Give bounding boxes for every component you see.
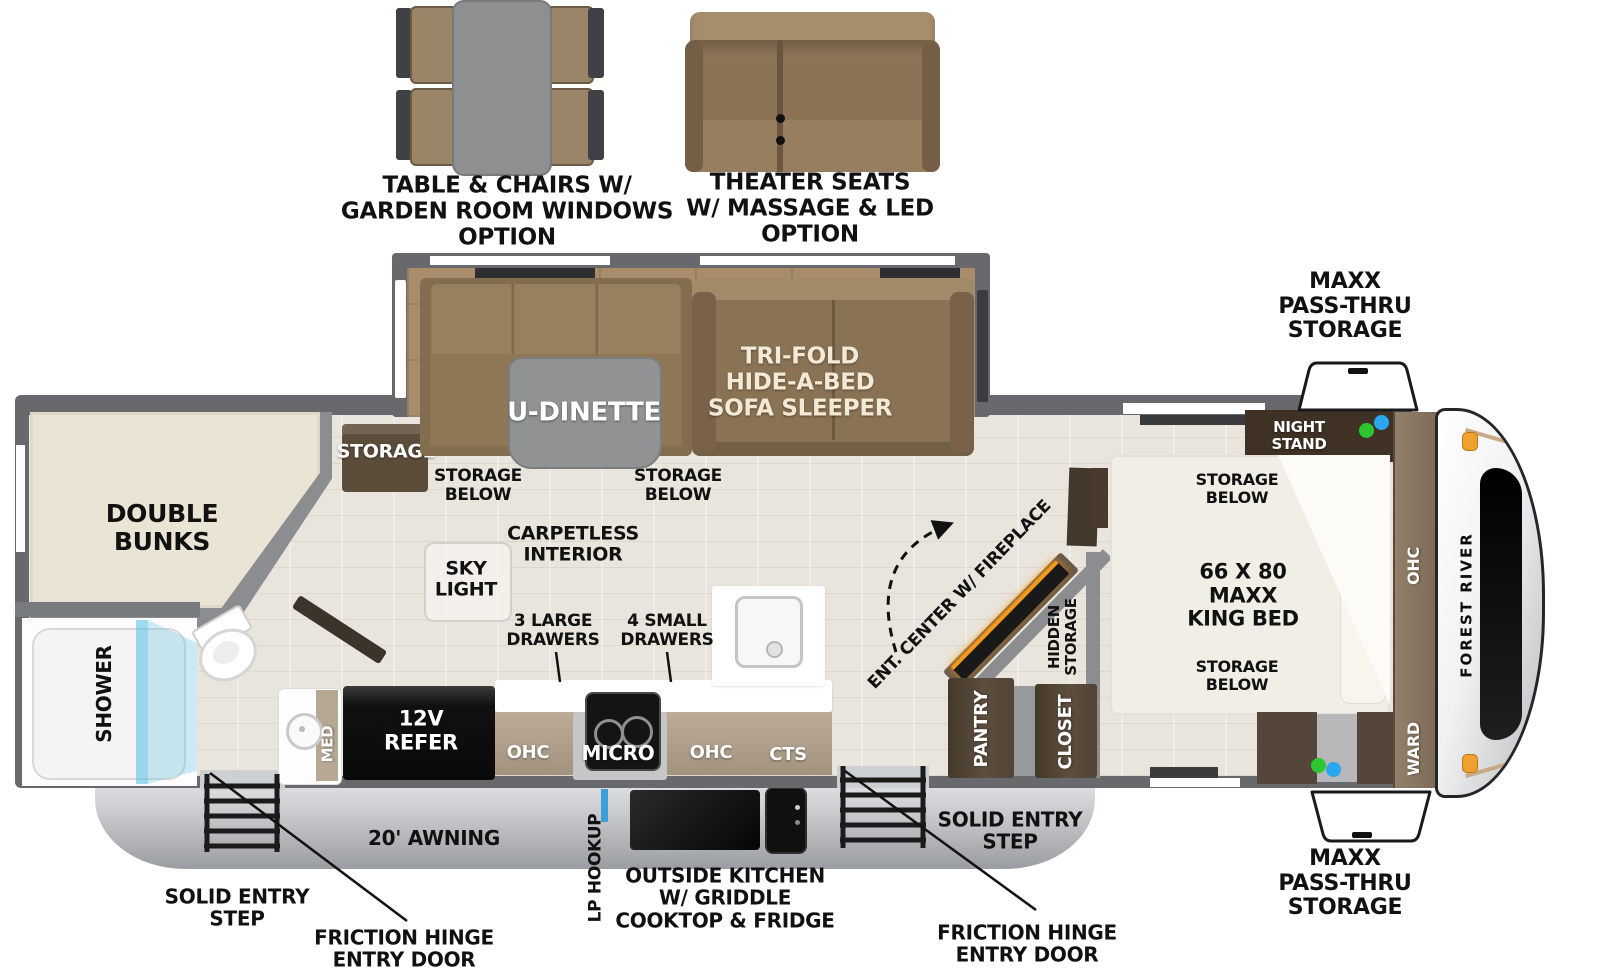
- fridge-handle-dot: [795, 805, 800, 810]
- hatch-handle: [1352, 832, 1372, 838]
- shower-glass: [136, 620, 148, 784]
- hidden-storage-label: HIDDEN STORAGE: [1046, 598, 1080, 675]
- lp-hookup-label: LP HOOKUP: [586, 814, 605, 923]
- bed-storage-below-top-label: STORAGE BELOW: [1196, 471, 1279, 507]
- entry-step-main-label: SOLID ENTRY STEP: [938, 809, 1083, 854]
- option-theater-seats-label: THEATER SEATS W/ MASSAGE & LED OPTION: [686, 170, 934, 247]
- passthru-storage-label-top: MAXX PASS-THRU STORAGE: [1278, 270, 1411, 344]
- bedroom-window-bottom: [1150, 778, 1240, 787]
- entry-door-opening-rear: [200, 770, 285, 790]
- hatch-handle: [1348, 368, 1368, 374]
- slideout-window-sill: [475, 268, 595, 278]
- entry-door-rear-label: FRICTION HINGE ENTRY DOOR: [314, 927, 494, 972]
- cap-marker-light: [1462, 432, 1478, 451]
- passthru-hatch-bottom: [1312, 792, 1430, 841]
- double-bunks-label: DOUBLE BUNKS: [106, 500, 219, 556]
- chair-icon: [410, 88, 458, 166]
- passthru-storage-label-bottom: MAXX PASS-THRU STORAGE: [1278, 847, 1411, 921]
- sofa-label: TRI-FOLD HIDE-A-BED SOFA SLEEPER: [708, 344, 892, 421]
- shower-label: SHOWER: [93, 645, 115, 742]
- entry-step-rear-label: SOLID ENTRY STEP: [165, 886, 310, 931]
- u-dinette-label: U-DINETTE: [507, 398, 661, 427]
- med-label: MED: [320, 726, 337, 763]
- cap-windshield: [1480, 468, 1522, 740]
- micro-label: MICRO: [582, 742, 655, 764]
- bedroom-window-bottom-sill: [1150, 767, 1218, 778]
- kitchen-faucet: [766, 641, 783, 658]
- u-dinette-cushions: [432, 284, 680, 354]
- dining-table-icon: [452, 0, 552, 176]
- sofa-armrest: [950, 292, 974, 452]
- bedroom-ohc-label: OHC: [1405, 547, 1423, 585]
- storage-below-right-label: STORAGE BELOW: [634, 467, 722, 505]
- slideout-window-left: [395, 280, 406, 398]
- rv-floorplan-diagram: TABLE & CHAIRS W/ GARDEN ROOM WINDOWS OP…: [0, 0, 1600, 977]
- outside-kitchen-fridge: [765, 787, 807, 854]
- slideout-window-sill: [880, 268, 960, 278]
- carpetless-label: CARPETLESS INTERIOR: [507, 524, 639, 567]
- theater-seat-front: [691, 120, 934, 172]
- refer-label: 12V REFER: [384, 707, 458, 754]
- king-bed-label: 66 X 80 MAXX KING BED: [1187, 561, 1299, 632]
- forest-river-brand: FOREST RIVER: [1459, 532, 1476, 678]
- theater-console-divider: [777, 40, 783, 172]
- theater-armrest: [922, 42, 940, 172]
- cts-label: CTS: [769, 745, 807, 765]
- ward-label: WARD: [1405, 722, 1423, 776]
- closet-label: CLOSET: [1056, 694, 1076, 769]
- option-theater-seats-art: [685, 12, 940, 172]
- cap-marker-light: [1462, 754, 1478, 773]
- slideout-window-top: [700, 256, 955, 265]
- theater-armrest: [685, 42, 703, 172]
- large-drawers-label: 3 LARGE DRAWERS: [506, 612, 599, 650]
- status-dot-green: [1311, 758, 1326, 773]
- chair-icon: [410, 6, 458, 84]
- kitchen-sink: [735, 596, 803, 668]
- bed-side-cabinet: [1092, 468, 1108, 528]
- small-drawers-label: 4 SMALL DRAWERS: [620, 612, 713, 650]
- bath-sink: [286, 713, 323, 750]
- pantry-label: PANTRY: [972, 691, 992, 768]
- bath-sink-drain: [299, 726, 305, 732]
- status-dot-blue: [1374, 415, 1389, 430]
- bedroom-window-top: [1123, 403, 1265, 414]
- chair-icon: [588, 90, 604, 160]
- cupholder-dot: [776, 114, 785, 123]
- slideout-window-right: [977, 290, 988, 402]
- fridge-handle-dot: [795, 820, 800, 825]
- pantry-closet-divider: [1014, 686, 1035, 776]
- shower-glass-panel: [148, 620, 197, 784]
- bed-storage-below-bottom-label: STORAGE BELOW: [1196, 658, 1279, 694]
- entry-door-main-label: FRICTION HINGE ENTRY DOOR: [937, 922, 1117, 967]
- outside-kitchen-griddle: [630, 790, 760, 850]
- option-table-chairs-label: TABLE & CHAIRS W/ GARDEN ROOM WINDOWS OP…: [341, 173, 673, 250]
- skylight-label: SKY LIGHT: [435, 559, 497, 602]
- rear-window: [16, 445, 25, 552]
- chair-icon: [546, 88, 594, 166]
- bedroom-window-sill: [1140, 415, 1258, 425]
- awning-label: 20' AWNING: [368, 827, 500, 849]
- slideout-window-top: [430, 256, 610, 265]
- chair-icon: [546, 6, 594, 84]
- night-stand-label: NIGHT STAND: [1272, 419, 1327, 453]
- outside-kitchen-label: OUTSIDE KITCHEN W/ GRIDDLE COOKTOP & FRI…: [615, 864, 834, 931]
- cupholder-dot: [776, 136, 785, 145]
- bath-wall: [15, 602, 200, 617]
- wardrobe-cabinet: [1357, 712, 1395, 784]
- ohc-left-label: OHC: [507, 743, 550, 763]
- front-cap: FOREST RIVER: [1435, 408, 1545, 798]
- status-dot-blue: [1326, 762, 1341, 777]
- bed-foot-cabinet: [1257, 712, 1317, 784]
- entry-door-opening-main: [837, 766, 929, 788]
- ohc-right-label: OHC: [690, 743, 733, 763]
- storage-below-left-label: STORAGE BELOW: [434, 467, 522, 505]
- chair-icon: [588, 8, 604, 78]
- status-dot-green: [1359, 423, 1374, 438]
